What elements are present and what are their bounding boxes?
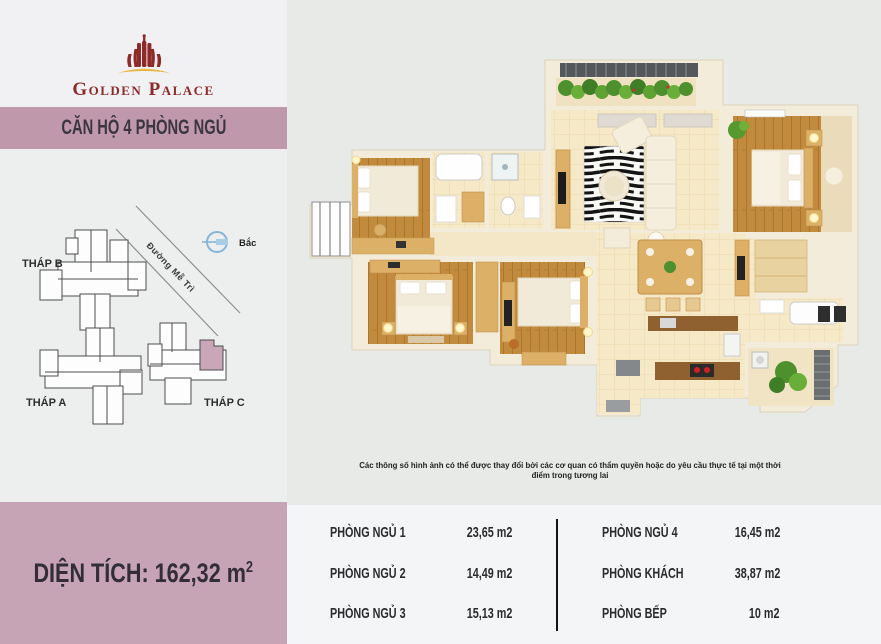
room-name: PHÒNG NGỦ 1 bbox=[330, 524, 406, 541]
brochure-page: Golden Palace CĂN HỘ 4 PHÒNG NGỦ Đường M… bbox=[0, 0, 881, 644]
site-map-panel: Đường Mễ Trì bbox=[0, 149, 287, 502]
room-areas-right-column: PHÒNG NGỦ 4 16,45 m2 PHÒNG KHÁCH 38,87 m… bbox=[602, 505, 780, 644]
brand-header: Golden Palace bbox=[0, 0, 287, 107]
wardrobe bbox=[476, 262, 498, 332]
floor-plan-render bbox=[287, 0, 881, 505]
table-row: PHÒNG NGỦ 3 15,13 m2 bbox=[330, 603, 512, 623]
room-area: 16,45 m2 bbox=[734, 524, 780, 541]
disclaimer-text: Các thông số hình ảnh có thể được thay đ… bbox=[358, 460, 781, 480]
table-row: PHÒNG NGỦ 1 23,65 m2 bbox=[330, 522, 512, 542]
room-areas-left-column: PHÒNG NGỦ 1 23,65 m2 PHÒNG NGỦ 2 14,49 m… bbox=[330, 505, 512, 644]
room-name: PHÒNG BẾP bbox=[602, 605, 667, 622]
brand-name: Golden Palace bbox=[72, 80, 214, 99]
site-map: Đường Mễ Trì bbox=[0, 149, 287, 502]
corridor-closet bbox=[735, 240, 807, 296]
table-row: PHÒNG NGỦ 2 14,49 m2 bbox=[330, 563, 512, 583]
room-area: 38,87 m2 bbox=[734, 565, 780, 582]
apartment-type-banner: CĂN HỘ 4 PHÒNG NGỦ bbox=[0, 107, 287, 149]
tower-c-label: THÁP C bbox=[204, 396, 245, 409]
room-name: PHÒNG NGỦ 3 bbox=[330, 605, 406, 622]
area-superscript: 2 bbox=[246, 559, 253, 576]
compass-label: Bắc bbox=[239, 237, 256, 249]
column-divider bbox=[556, 519, 558, 631]
golden-palace-logo-icon bbox=[115, 34, 173, 80]
table-row: PHÒNG NGỦ 4 16,45 m2 bbox=[602, 522, 780, 542]
room-name: PHÒNG NGỦ 2 bbox=[330, 565, 406, 582]
highlighted-unit bbox=[200, 340, 223, 370]
sofa bbox=[646, 136, 676, 230]
table-row: PHÒNG BẾP 10 m2 bbox=[602, 603, 780, 623]
stove bbox=[690, 364, 714, 377]
tower-b-label: THÁP B bbox=[22, 257, 63, 270]
balcony-railing bbox=[560, 63, 698, 77]
total-area-text: DIỆN TÍCH: 162,32 m2 bbox=[34, 558, 254, 589]
apartment-type-label: CĂN HỘ 4 PHÒNG NGỦ bbox=[61, 116, 226, 140]
room-area: 15,13 m2 bbox=[466, 605, 512, 622]
dining-area bbox=[638, 240, 702, 311]
north-compass-icon bbox=[202, 232, 228, 252]
tower-b-footprint bbox=[40, 230, 146, 330]
room-name: PHÒNG NGỦ 4 bbox=[602, 524, 678, 541]
room-area: 14,49 m2 bbox=[466, 565, 512, 582]
area-box: DIỆN TÍCH: 162,32 m2 bbox=[0, 502, 287, 644]
room-area: 10 m2 bbox=[749, 605, 780, 622]
room-name: PHÒNG KHÁCH bbox=[602, 565, 684, 582]
room-areas-table: PHÒNG NGỦ 1 23,65 m2 PHÒNG NGỦ 2 14,49 m… bbox=[287, 505, 881, 644]
table-row: PHÒNG KHÁCH 38,87 m2 bbox=[602, 563, 780, 583]
tower-a-footprint bbox=[40, 328, 142, 424]
tower-a-label: THÁP A bbox=[26, 396, 66, 409]
room-area: 23,65 m2 bbox=[466, 524, 512, 541]
bedroom-1 bbox=[312, 156, 434, 256]
